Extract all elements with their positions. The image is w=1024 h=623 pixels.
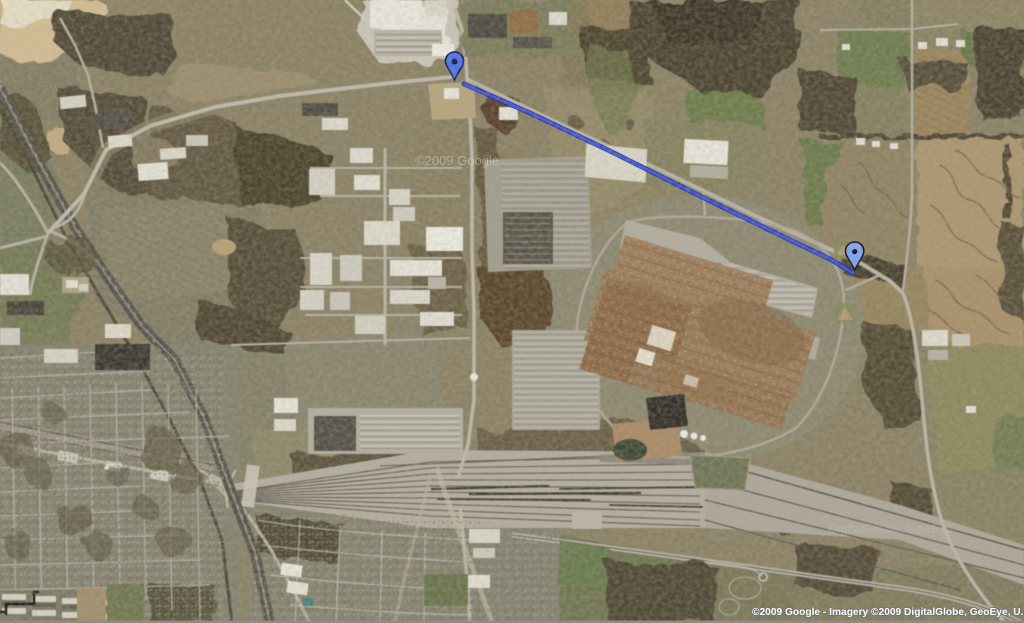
svg-text:©2009 Google - Imagery ©2009 D: ©2009 Google - Imagery ©2009 DigitalGlob… bbox=[752, 607, 1024, 618]
